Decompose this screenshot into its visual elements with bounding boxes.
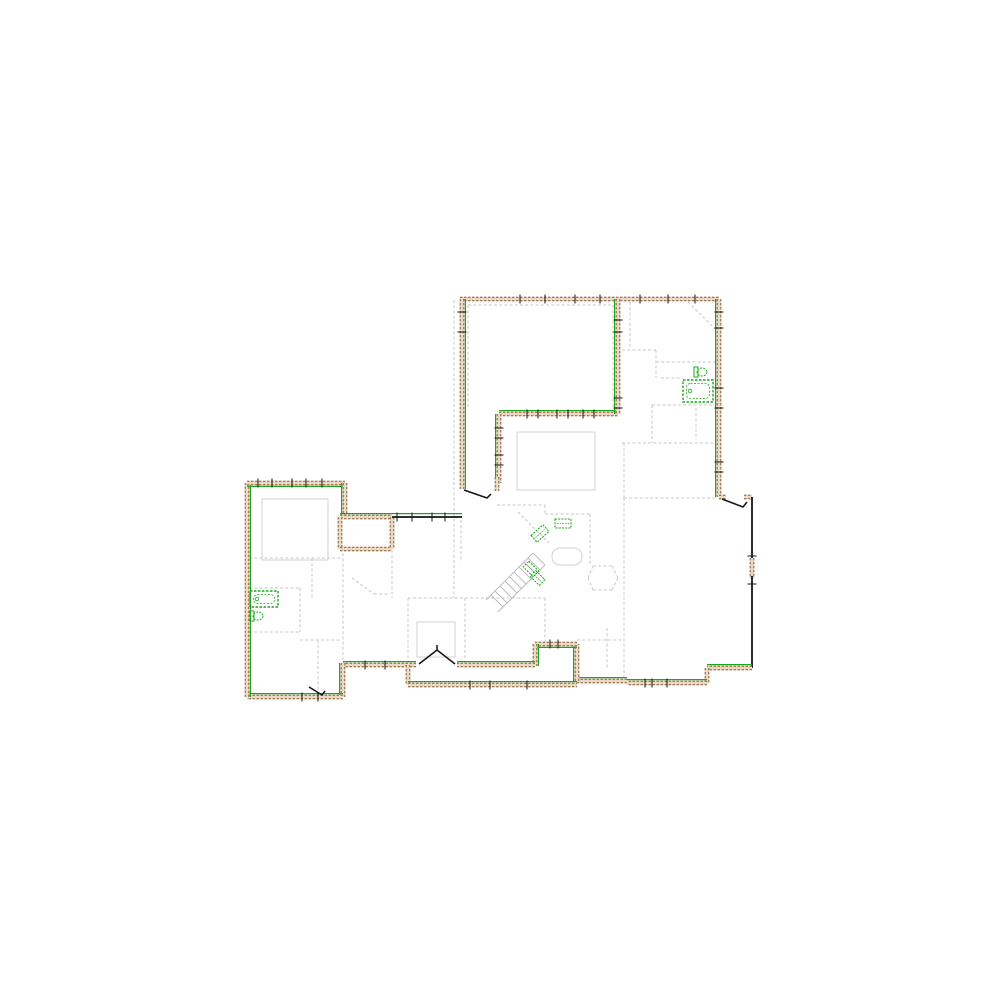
stair-line [500,586,512,598]
left-room-outline [262,499,328,560]
laundry-unit-b-detail [534,575,540,581]
partition-line [688,302,716,330]
stair-line [486,553,533,600]
partition-line [588,578,593,590]
island-outline [552,548,582,565]
bathtub-upper-basin [687,384,710,399]
floor-plan-canvas [0,0,1000,1000]
open-below-outline [517,432,595,490]
partition-line [612,578,618,590]
bathtub-left-basin [254,595,275,604]
porch-door [722,499,747,507]
bathtub-left-drain [255,597,259,601]
bathtub-left [250,591,278,607]
stair-line [533,553,545,565]
appliance-counter [555,519,571,528]
upper-room-door [464,490,491,498]
floor-plan-page [0,0,1000,1000]
bathtub-upper-drain [688,389,692,393]
partition-line [352,578,374,594]
partition-line [588,566,593,578]
floor-plan-drawing [0,0,1000,1000]
lower-room-outline [417,622,455,657]
partition-line [612,566,618,578]
